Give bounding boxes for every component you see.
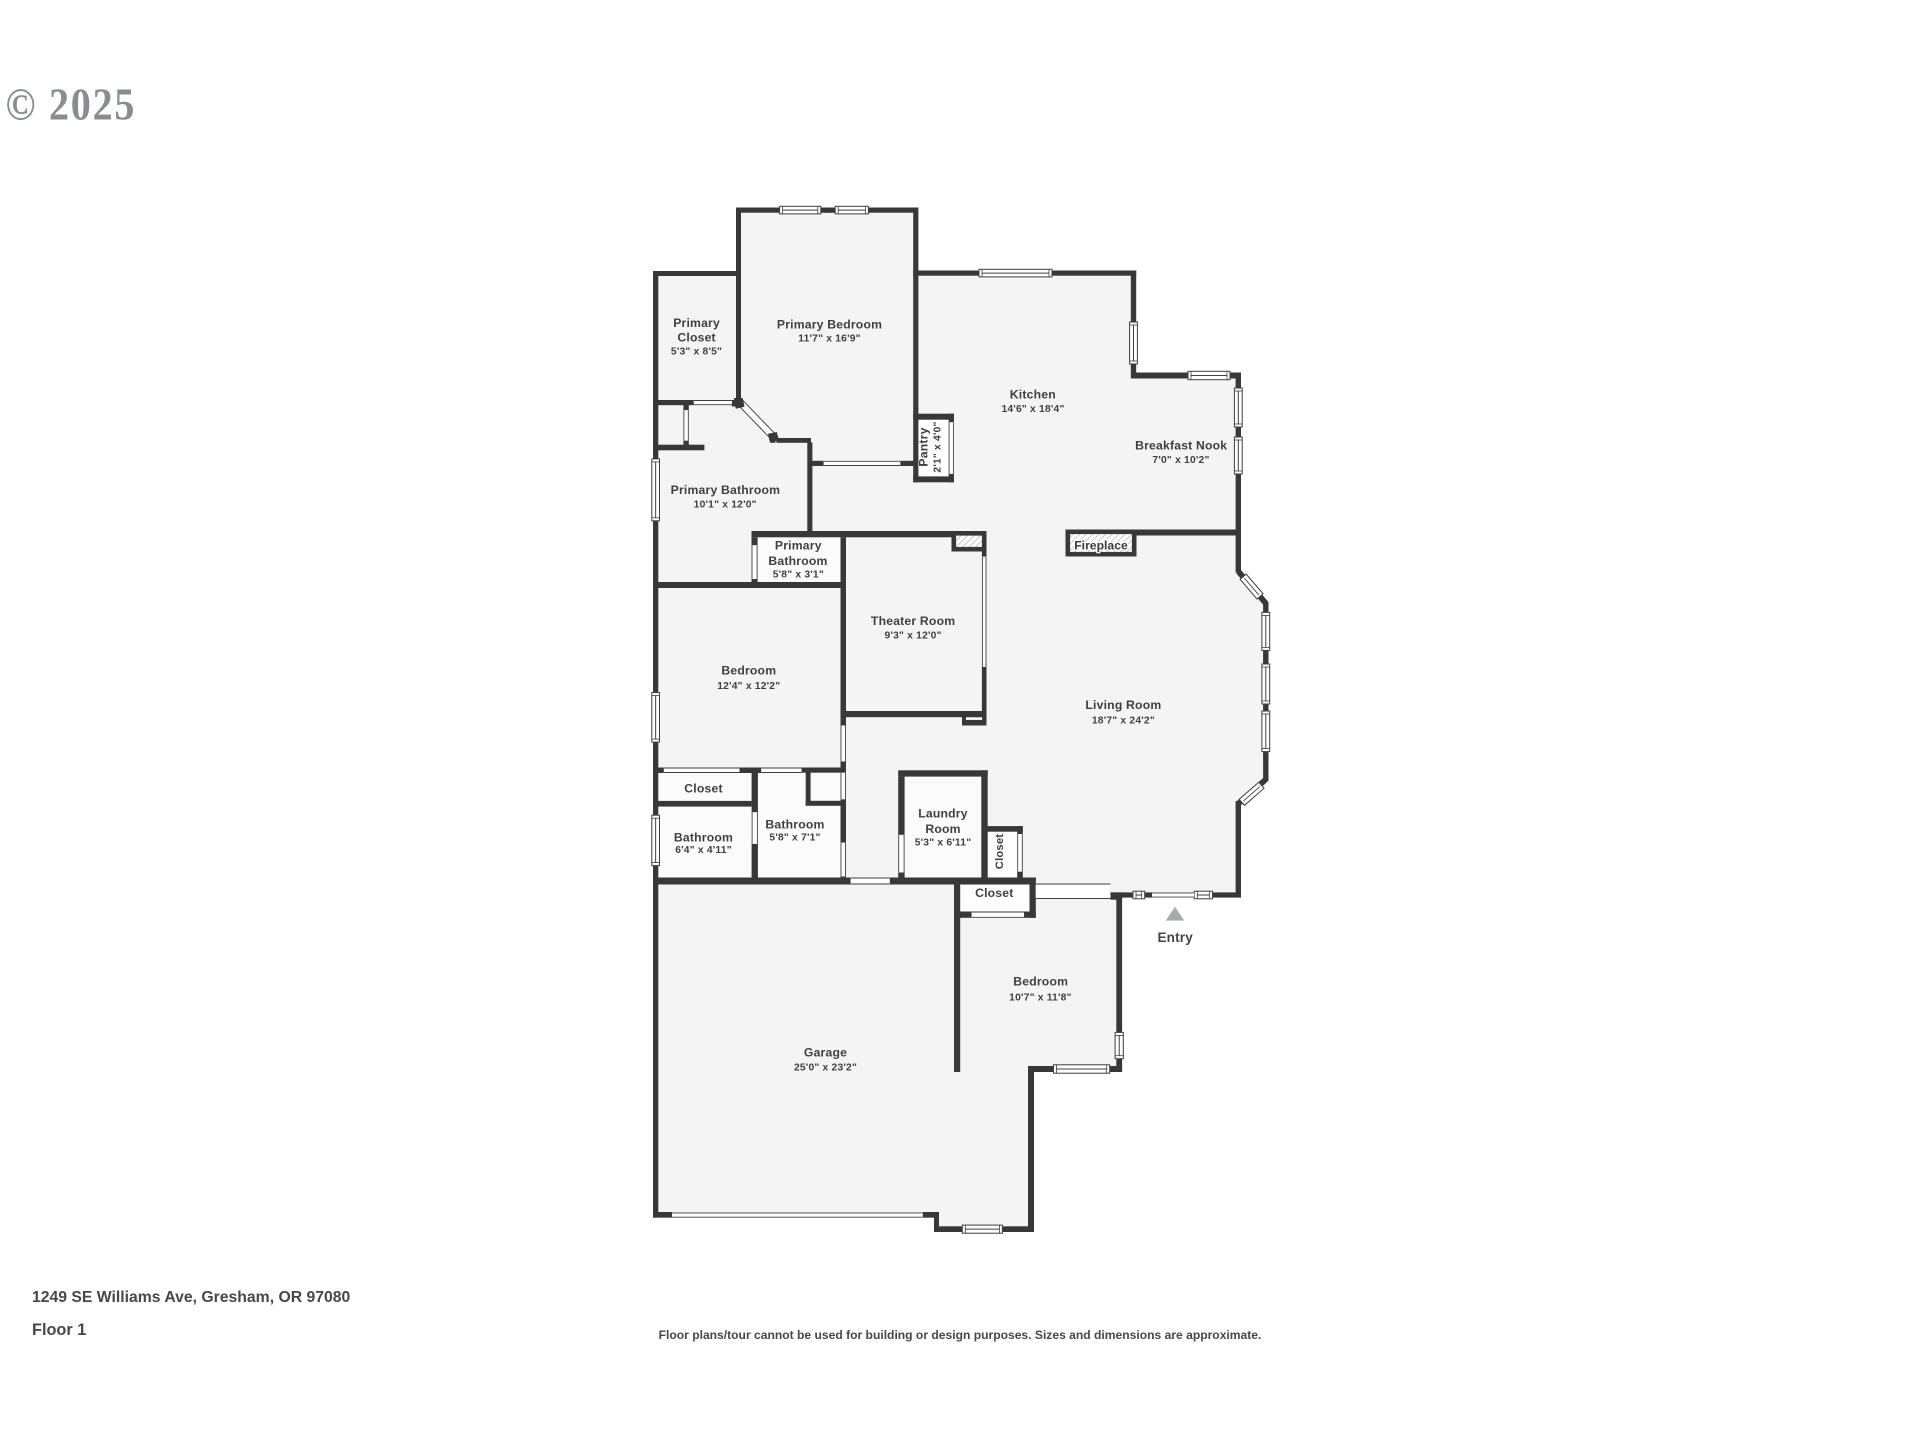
svg-text:Closet: Closet [677,330,715,344]
svg-text:10'7" x 11'8": 10'7" x 11'8" [1009,992,1072,1003]
svg-text:Bathroom: Bathroom [674,830,733,844]
svg-text:Room: Room [925,822,960,836]
svg-text:6'4" x 4'11": 6'4" x 4'11" [675,845,732,856]
svg-text:Primary Bedroom: Primary Bedroom [777,318,882,332]
svg-text:12'4" x 12'2": 12'4" x 12'2" [717,681,780,692]
svg-text:Laundry: Laundry [918,807,967,821]
svg-text:2'1" x 4'0": 2'1" x 4'0" [933,421,944,472]
svg-text:Bathroom: Bathroom [768,554,827,568]
svg-text:5'8" x 7'1": 5'8" x 7'1" [769,832,820,843]
svg-text:11'7" x 16'9": 11'7" x 16'9" [798,334,861,345]
svg-text:18'7" x 24'2": 18'7" x 24'2" [1092,715,1155,726]
svg-text:7'0" x 10'2": 7'0" x 10'2" [1152,455,1209,466]
svg-text:Closet: Closet [975,886,1013,900]
svg-text:5'3" x 6'11": 5'3" x 6'11" [915,838,972,849]
svg-text:14'6" x 18'4": 14'6" x 18'4" [1001,404,1064,415]
svg-text:5'3" x 8'5": 5'3" x 8'5" [671,347,722,358]
svg-text:Garage: Garage [804,1046,847,1060]
svg-text:Primary: Primary [775,539,822,553]
svg-text:Pantry: Pantry [917,427,931,466]
svg-text:9'3" x 12'0": 9'3" x 12'0" [885,631,942,642]
svg-text:Closet: Closet [684,782,722,796]
svg-text:Breakfast Nook: Breakfast Nook [1135,438,1227,452]
svg-text:Fireplace: Fireplace [1074,538,1128,552]
svg-text:Primary: Primary [673,316,720,330]
svg-text:Bathroom: Bathroom [765,818,824,832]
svg-text:Theater Room: Theater Room [871,614,955,628]
svg-text:Entry: Entry [1157,930,1193,945]
svg-text:5'8" x 3'1": 5'8" x 3'1" [773,569,824,580]
svg-text:10'1" x 12'0": 10'1" x 12'0" [694,500,757,511]
svg-text:Closet: Closet [994,834,1006,869]
svg-text:Bedroom: Bedroom [1013,974,1068,988]
svg-text:Living Room: Living Room [1085,698,1161,712]
svg-text:Primary Bathroom: Primary Bathroom [671,483,781,497]
svg-text:25'0" x 23'2": 25'0" x 23'2" [794,1063,857,1074]
svg-text:Bedroom: Bedroom [721,664,776,678]
svg-text:Kitchen: Kitchen [1010,387,1056,401]
svg-text:© 2025: © 2025 [6,80,137,130]
